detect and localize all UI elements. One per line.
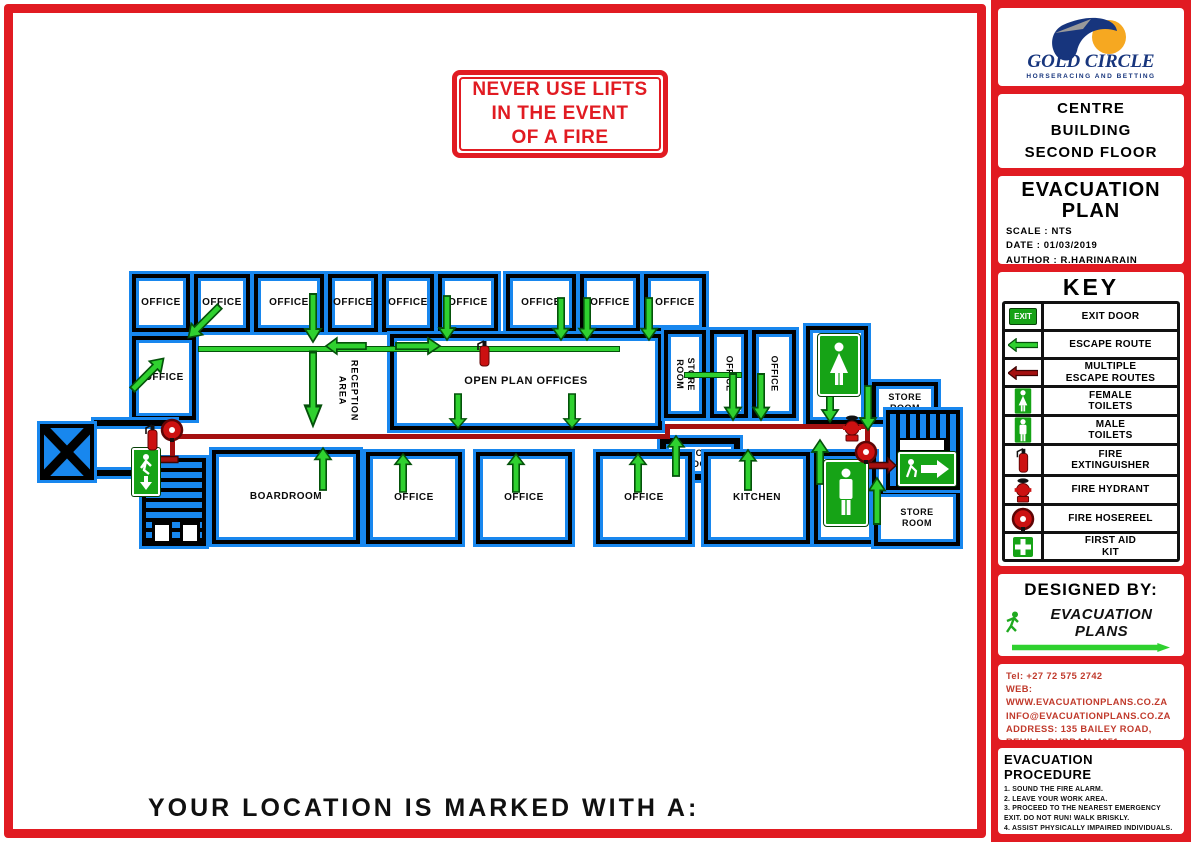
room-office-top-4: OFFICE	[328, 274, 378, 332]
contact-web: WEB: WWW.EVACUATIONPLANS.CO.ZA	[1006, 683, 1176, 709]
female-toilets-sign	[818, 334, 860, 396]
female-figure-icon	[826, 341, 852, 389]
escape-route-arrow	[860, 386, 876, 430]
male-toilets-sign	[824, 460, 868, 526]
contact-address-1: ADDRESS: 135 BAILEY ROAD,	[1006, 723, 1176, 736]
escape-route-arrow	[305, 294, 321, 342]
escape-route-arrow	[725, 374, 741, 420]
reception-area-label: RECEPTION AREA	[316, 348, 380, 434]
escape-route-arrow	[579, 298, 595, 340]
male-figure-icon	[833, 467, 859, 519]
gold-circle-logo-panel: GOLD CIRCLE HORSERACING AND BETTING	[998, 8, 1184, 86]
room-office-bottom-1: OFFICE	[366, 452, 462, 544]
escape-route-arrow	[630, 454, 646, 492]
running-man-down-arrow-icon	[136, 452, 156, 492]
key-row-fire-hydrant: FIRE HYDRANT	[1005, 477, 1177, 506]
key-row-fire-hosereel: FIRE HOSEREEL	[1005, 506, 1177, 534]
building-title-panel: CENTRE BUILDING SECOND FLOOR	[998, 94, 1184, 168]
fire-hosereel-icon	[160, 418, 184, 442]
room-office-top-1: OFFICE	[132, 274, 190, 332]
procedure-step: 4. ASSIST PHYSICALLY IMPAIRED INDIVIDUAL…	[1004, 824, 1178, 834]
room-office-top-5: OFFICE	[382, 274, 434, 332]
designed-by-heading: DESIGNED BY:	[1004, 580, 1178, 600]
fire-extinguisher-icon	[144, 422, 160, 452]
multiple-escape-route-line	[170, 434, 665, 439]
evacuation-plans-arrow-strip	[1012, 643, 1170, 652]
fire-extinguisher-icon	[476, 338, 492, 368]
procedure-title: EVACUATION PROCEDURE	[1004, 752, 1178, 782]
female-toilets-icon	[1014, 388, 1032, 414]
key-row-first-aid-kit: FIRST AID KIT	[1005, 534, 1177, 559]
key-row-fire-extinguisher: FIRE EXTINGUISHER	[1005, 446, 1177, 477]
lift-shaft	[40, 424, 94, 480]
escape-route-arrow	[315, 448, 331, 490]
escape-route-arrow	[564, 394, 580, 428]
procedure-step: 3. PROCEED TO THE NEAREST EMERGENCY EXIT…	[1004, 804, 1178, 823]
escape-route-arrow	[305, 352, 321, 426]
exit-door-sign-left	[132, 448, 160, 496]
gold-circle-brand: GOLD CIRCLE	[1027, 51, 1154, 72]
plan-author: AUTHOR : R.HARINARAIN	[1006, 254, 1176, 265]
escape-route-arrow	[553, 298, 569, 340]
footer-note: YOUR LOCATION IS MARKED WITH A:	[148, 794, 699, 823]
exit-door-sign-right	[898, 452, 956, 486]
procedure-step: 1. SOUND THE FIRE ALARM.	[1004, 785, 1178, 795]
warning-text: NEVER USE LIFTS IN THE EVENT OF A FIRE	[472, 78, 647, 149]
gold-circle-tagline: HORSERACING AND BETTING	[1026, 73, 1155, 80]
plan-date: DATE : 01/03/2019	[1006, 239, 1176, 253]
escape-route-arrow	[740, 450, 756, 490]
escape-route-arrow	[641, 298, 657, 340]
evacuation-plans-running-man-icon	[1004, 611, 1022, 635]
warning-box-inner: NEVER USE LIFTS IN THE EVENT OF A FIRE	[459, 77, 661, 151]
key-row-multiple-escape-routes: MULTIPLE ESCAPE ROUTES	[1005, 360, 1177, 388]
key-row-escape-route: ESCAPE ROUTE	[1005, 332, 1177, 360]
designed-by-panel: DESIGNED BY: EVACUATION PLANS	[998, 574, 1184, 656]
fire-extinguisher-icon	[1015, 446, 1031, 474]
escape-route-arrow	[869, 478, 885, 524]
first-aid-kit-icon	[1011, 535, 1035, 559]
room-office-bottom-2: OFFICE	[476, 452, 572, 544]
key-row-female-toilets: FEMALE TOILETS	[1005, 388, 1177, 417]
escape-route-arrow	[326, 338, 366, 354]
escape-route-arrow	[753, 374, 769, 420]
sidebar: GOLD CIRCLE HORSERACING AND BETTING CENT…	[991, 0, 1191, 842]
plan-info-panel: EVACUATION PLAN SCALE : NTS DATE : 01/03…	[998, 176, 1184, 264]
fire-hosereel-icon	[854, 440, 878, 464]
key-title: KEY	[1002, 274, 1180, 301]
running-man-right-arrow-icon	[903, 457, 951, 481]
contact-panel: Tel: +27 72 575 2742 WEB: WWW.EVACUATION…	[998, 664, 1184, 740]
escape-route-arrow	[396, 338, 440, 354]
building-title: CENTRE BUILDING SECOND FLOOR	[1025, 98, 1158, 163]
male-toilets-icon	[1014, 417, 1032, 443]
escape-route-arrow	[668, 436, 684, 476]
escape-route-arrow	[395, 454, 411, 492]
key-table: EXIT EXIT DOOR ESCAPE ROUTE MULTIPLE ESC…	[1002, 301, 1180, 562]
escape-route-arrow	[450, 394, 466, 428]
escape-route-arrow	[508, 454, 524, 492]
key-row-male-toilets: MALE TOILETS	[1005, 417, 1177, 446]
key-panel: KEY EXIT EXIT DOOR ESCAPE ROUTE MULTIPLE…	[998, 272, 1184, 566]
gold-circle-logo: GOLD CIRCLE HORSERACING AND BETTING	[1005, 11, 1177, 83]
evacuation-plans-brand: EVACUATION PLANS	[1025, 606, 1178, 640]
contact-email: INFO@EVACUATIONPLANS.CO.ZA	[1006, 710, 1176, 723]
multiple-escape-route-line	[665, 424, 870, 429]
procedure-step: 2. LEAVE YOUR WORK AREA.	[1004, 795, 1178, 805]
fire-hydrant-icon	[842, 414, 862, 442]
lift-x-icon	[44, 428, 90, 476]
fire-hydrant-icon	[1013, 477, 1033, 503]
contact-address-2: REHILL, DURBAN, 4051	[1006, 736, 1176, 740]
procedure-step: 5. PROCEED TO THE ASSEMBLY POINT LOCATED…	[1004, 833, 1178, 834]
plan-title: EVACUATION PLAN	[1006, 180, 1176, 222]
key-row-exit-door: EXIT EXIT DOOR	[1005, 304, 1177, 332]
warning-box: NEVER USE LIFTS IN THE EVENT OF A FIRE	[452, 70, 668, 158]
room-boardroom: BOARDROOM	[212, 450, 360, 544]
room-store-room-bottom-right: STORE ROOM	[874, 490, 960, 546]
room-kitchen: KITCHEN	[704, 452, 810, 544]
contact-tel: Tel: +27 72 575 2742	[1006, 670, 1176, 683]
escape-route-icon	[1008, 338, 1038, 352]
escape-route-arrow	[439, 296, 455, 340]
plan-scale: SCALE : NTS	[1006, 225, 1176, 239]
evacuation-procedure-panel: EVACUATION PROCEDURE 1. SOUND THE FIRE A…	[998, 748, 1184, 834]
fire-hosereel-icon	[1011, 507, 1035, 531]
exit-door-icon: EXIT	[1009, 308, 1037, 325]
multiple-escape-routes-icon	[1008, 366, 1038, 380]
